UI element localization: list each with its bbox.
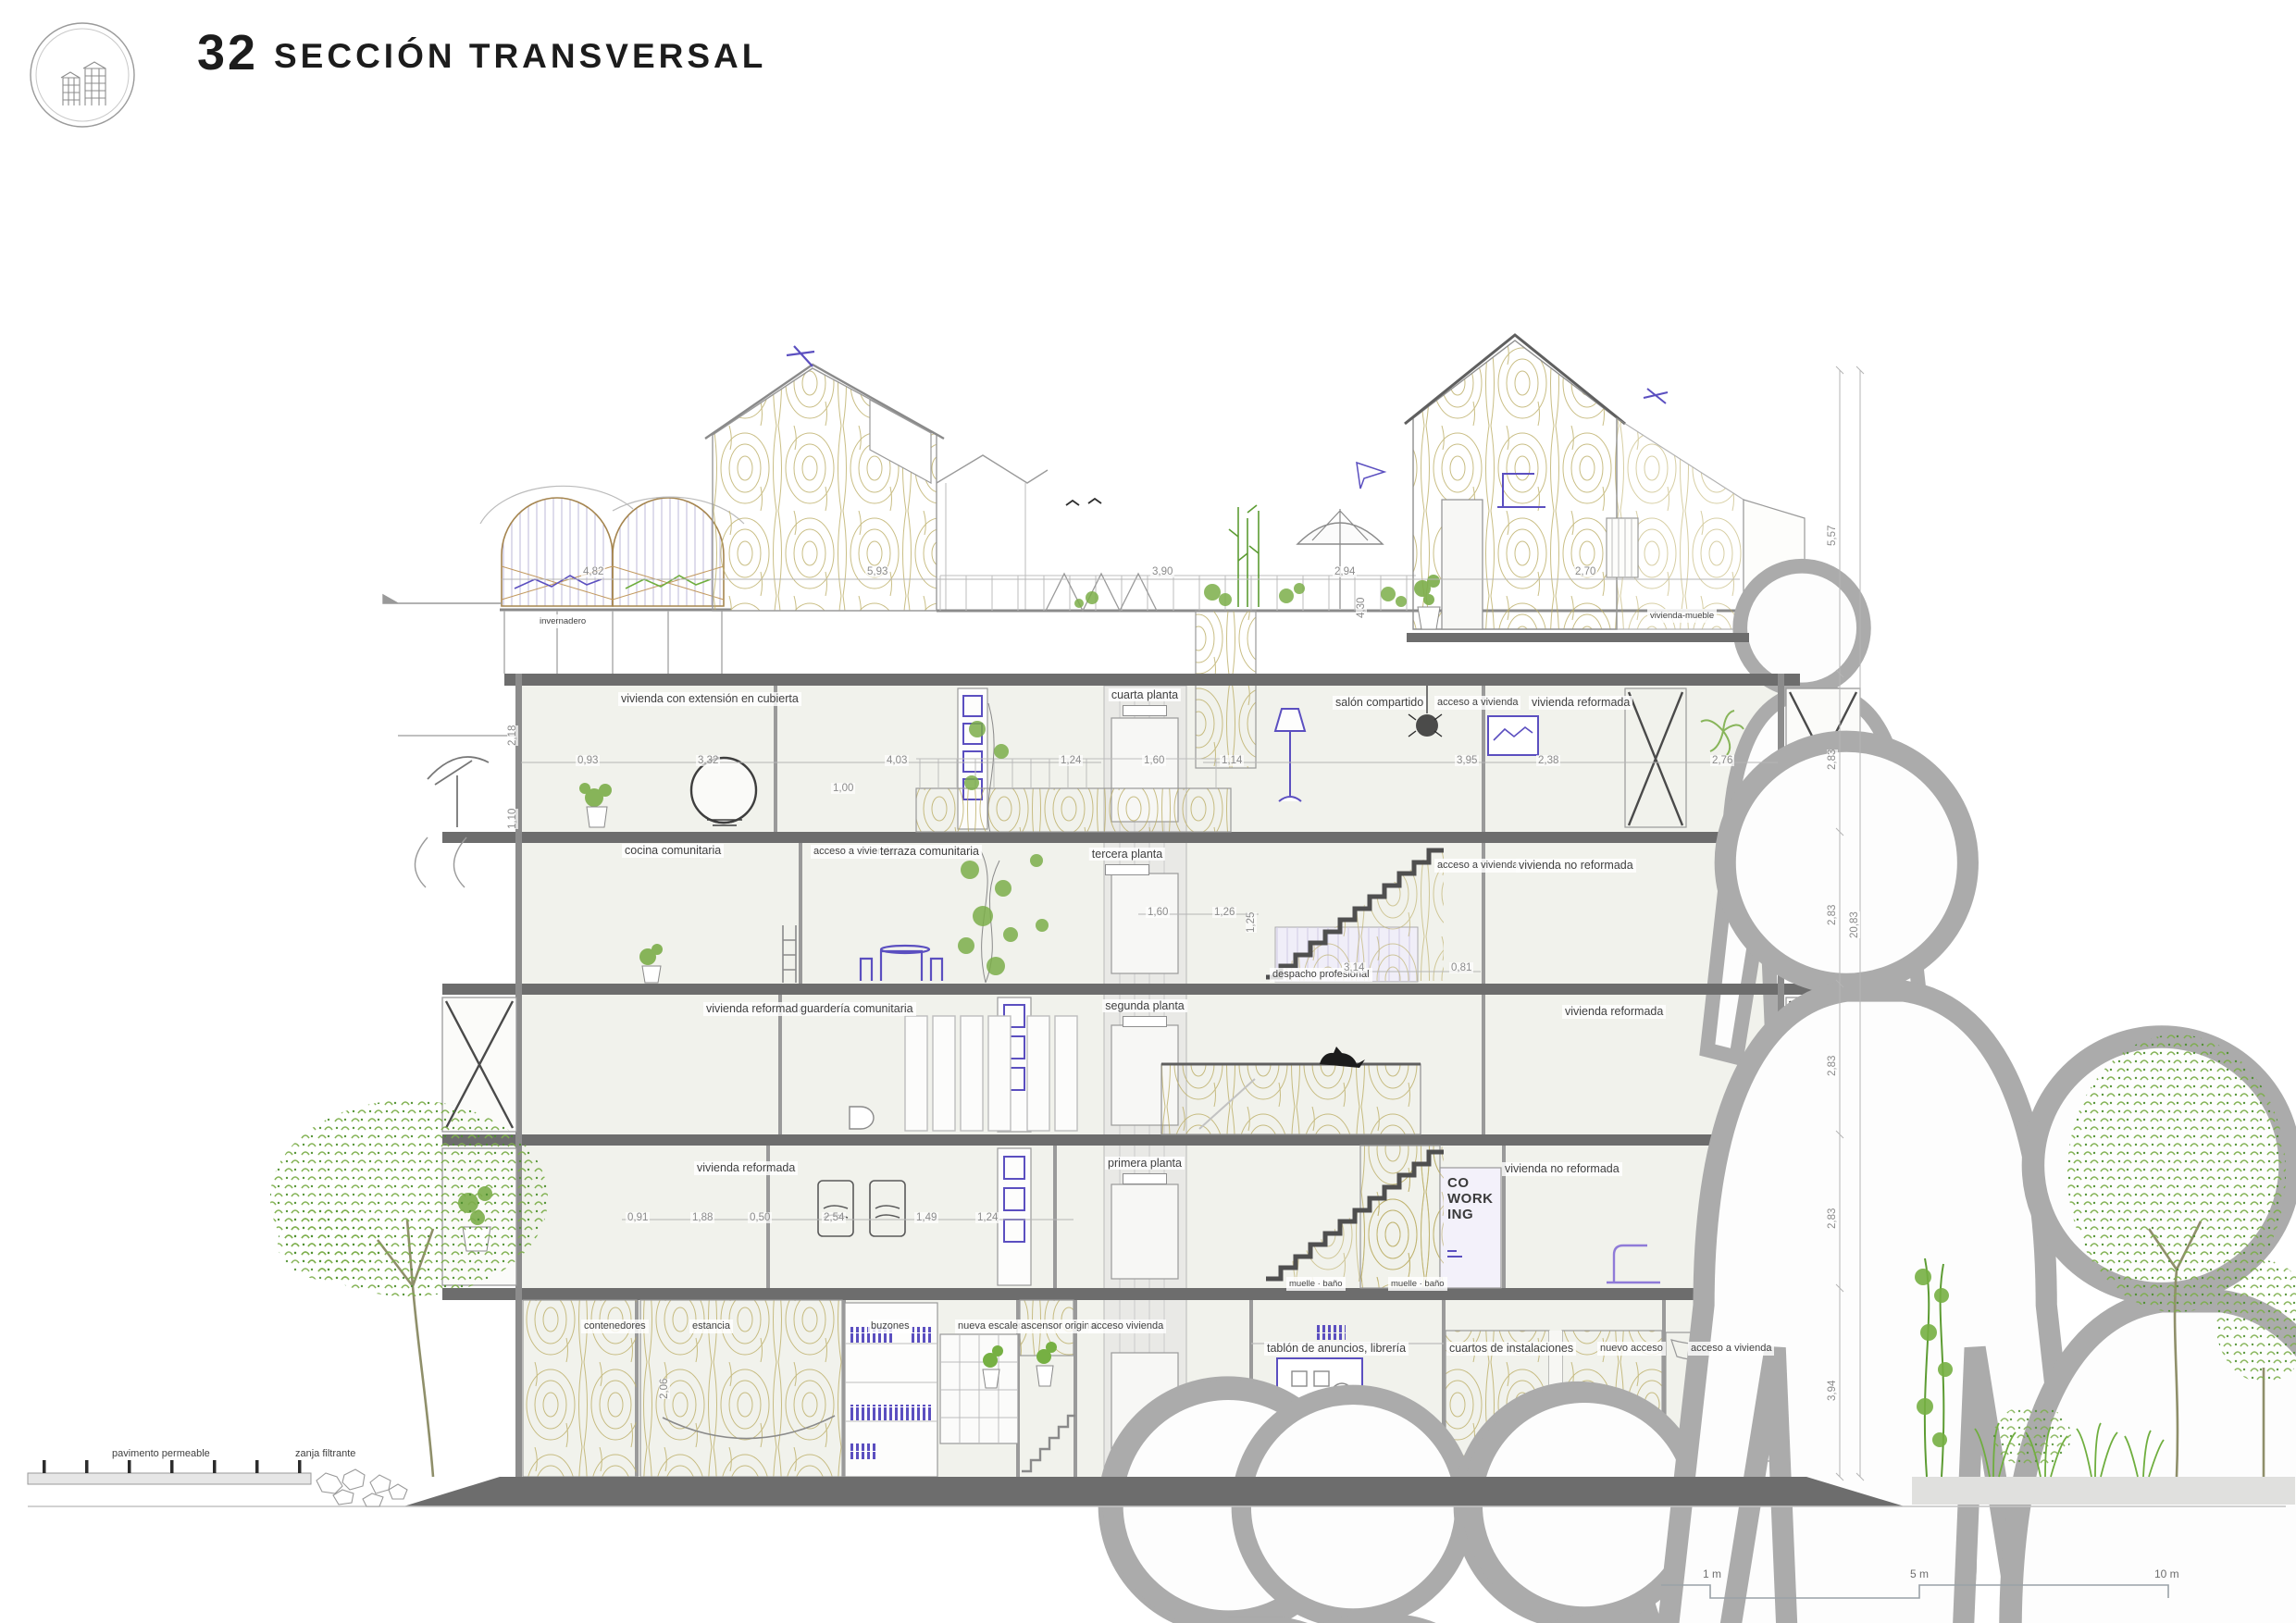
room-label-cuartos-instalaciones: cuartos de instalaciones [1446, 1342, 1576, 1356]
dim-l3-1: 1,60 [1146, 907, 1170, 918]
floor-tag-badge [1123, 1016, 1167, 1027]
dim-right-5: 2,83 [1827, 1208, 1838, 1229]
dim-l4-7: 1,14 [1220, 755, 1244, 766]
room-label-vivienda-no-reformada-l3: vivienda no reformada [1516, 859, 1636, 873]
floor-tag-tercera-planta: tercera planta [1089, 848, 1165, 861]
dim-right-2: 2,83 [1827, 750, 1838, 770]
room-label-contenedores: contenedores [581, 1319, 649, 1333]
room-label-vivienda-reformada-l4: vivienda reformada [1529, 696, 1632, 710]
dim-l1-4: 2,54 [822, 1212, 846, 1223]
room-label-vivienda-no-reformada-l1: vivienda no reformada [1502, 1162, 1622, 1176]
room-label-tablon-anuncios: tablón de anuncios, librería [1264, 1342, 1409, 1356]
room-label-coworking: CO WORK ING [1447, 1175, 1494, 1222]
dim-l1-5: 1,49 [914, 1212, 938, 1223]
dim-l3-4: 3,14 [1342, 962, 1366, 973]
room-label-acceso-a-vivienda-ground: acceso a vivienda [1688, 1342, 1774, 1356]
scalebar-label-5m: 5 m [1910, 1567, 1929, 1580]
room-label-vivienda-reformada-l2: vivienda reformada [703, 1002, 807, 1016]
scalebar-label-10m: 10 m [2154, 1567, 2179, 1580]
roof-label-vivienda-mueble: vivienda-mueble [1647, 609, 1717, 623]
dim-right-6: 3,94 [1827, 1381, 1838, 1401]
dim-roof-5: 2,70 [1573, 566, 1597, 577]
site-label-zanja-filtrante: zanja filtrante [292, 1447, 358, 1461]
dim-right-3: 2,83 [1827, 905, 1838, 925]
room-label-acceso-vivienda-l4: acceso a vivienda [1434, 696, 1520, 710]
dim-roof-2: 5,93 [865, 566, 889, 577]
dim-l4-8: 3,95 [1455, 755, 1479, 766]
room-label-acceso-vivienda-l3-right: acceso a vivienda [1434, 859, 1520, 873]
room-label-cocina-comunitaria: cocina comunitaria [622, 844, 724, 858]
room-label-estancia: estancia [689, 1319, 733, 1333]
section-sheet: 32 SECCIÓN TRANSVERSAL [0, 0, 2296, 1623]
floor-tag-segunda-planta: segunda planta [1102, 999, 1187, 1012]
room-label-buzones: buzones [868, 1319, 912, 1333]
dim-right-1: 5,57 [1827, 526, 1838, 546]
dim-l4-6: 1,60 [1142, 755, 1166, 766]
dim-left-1: 2,18 [507, 725, 518, 746]
floor-tag-primera-planta: primera planta [1105, 1157, 1185, 1170]
room-label-vivienda-extension: vivienda con extensión en cubierta [618, 692, 801, 706]
dim-l4-2: 3,32 [696, 755, 720, 766]
roof-label-invernadero: invernadero [537, 614, 589, 628]
dim-left-2: 1,10 [507, 809, 518, 829]
dim-l1-6: 1,24 [975, 1212, 999, 1223]
room-label-muelle-bano-b: muelle · baño [1388, 1277, 1447, 1291]
room-label-guarderia-comunitaria: guardería comunitaria [798, 1002, 916, 1016]
room-label-terraza-comunitaria: terraza comunitaria [877, 845, 982, 859]
section-drawing [0, 0, 2296, 1623]
dim-right-total: 20,83 [1849, 911, 1860, 938]
dim-roof-4: 2,94 [1333, 566, 1357, 577]
dim-l1-2: 1,88 [690, 1212, 714, 1223]
dim-l3-3: 1,25 [1246, 912, 1257, 933]
dim-l4-4: 4,03 [885, 755, 909, 766]
floor-tag-badge [1123, 705, 1167, 716]
dim-l4-1: 0,93 [576, 755, 600, 766]
site-label-pavimento-permeable: pavimento permeable [109, 1447, 213, 1461]
room-label-vivienda-reformada-l1: vivienda reformada [694, 1161, 798, 1175]
dim-l4-9: 2,38 [1536, 755, 1560, 766]
room-label-salon-compartido: salón compartido [1333, 696, 1426, 710]
dim-roof-3: 3,90 [1150, 566, 1174, 577]
dim-l1-3: 0,50 [748, 1212, 772, 1223]
floor-tag-badge [1105, 864, 1149, 875]
scalebar-label-1m: 1 m [1703, 1567, 1721, 1580]
dim-l4-10: 2,76 [1710, 755, 1734, 766]
room-label-nuevo-acceso: nuevo acceso [1597, 1342, 1666, 1356]
dim-roof-1: 4,82 [581, 566, 605, 577]
room-label-vivienda-reformada-l2-right: vivienda reformada [1562, 1005, 1666, 1019]
dim-l3-5: 0,81 [1449, 962, 1473, 973]
dim-l1-1: 0,91 [626, 1212, 650, 1223]
floor-tag-cuarta-planta: cuarta planta [1109, 688, 1181, 701]
dim-ground-1: 2,06 [659, 1379, 670, 1399]
floor-tag-badge [1123, 1173, 1167, 1184]
dim-l4-5: 1,24 [1059, 755, 1083, 766]
dim-l3-2: 1,26 [1212, 907, 1236, 918]
room-label-acceso-vivienda-ground: acceso vivienda [1088, 1319, 1166, 1333]
dim-roof-6: 4,30 [1356, 598, 1367, 618]
room-label-muelle-bano-a: muelle · baño [1286, 1277, 1346, 1291]
dim-right-4: 2,83 [1827, 1056, 1838, 1076]
dim-l4-3: 1,00 [831, 783, 855, 794]
